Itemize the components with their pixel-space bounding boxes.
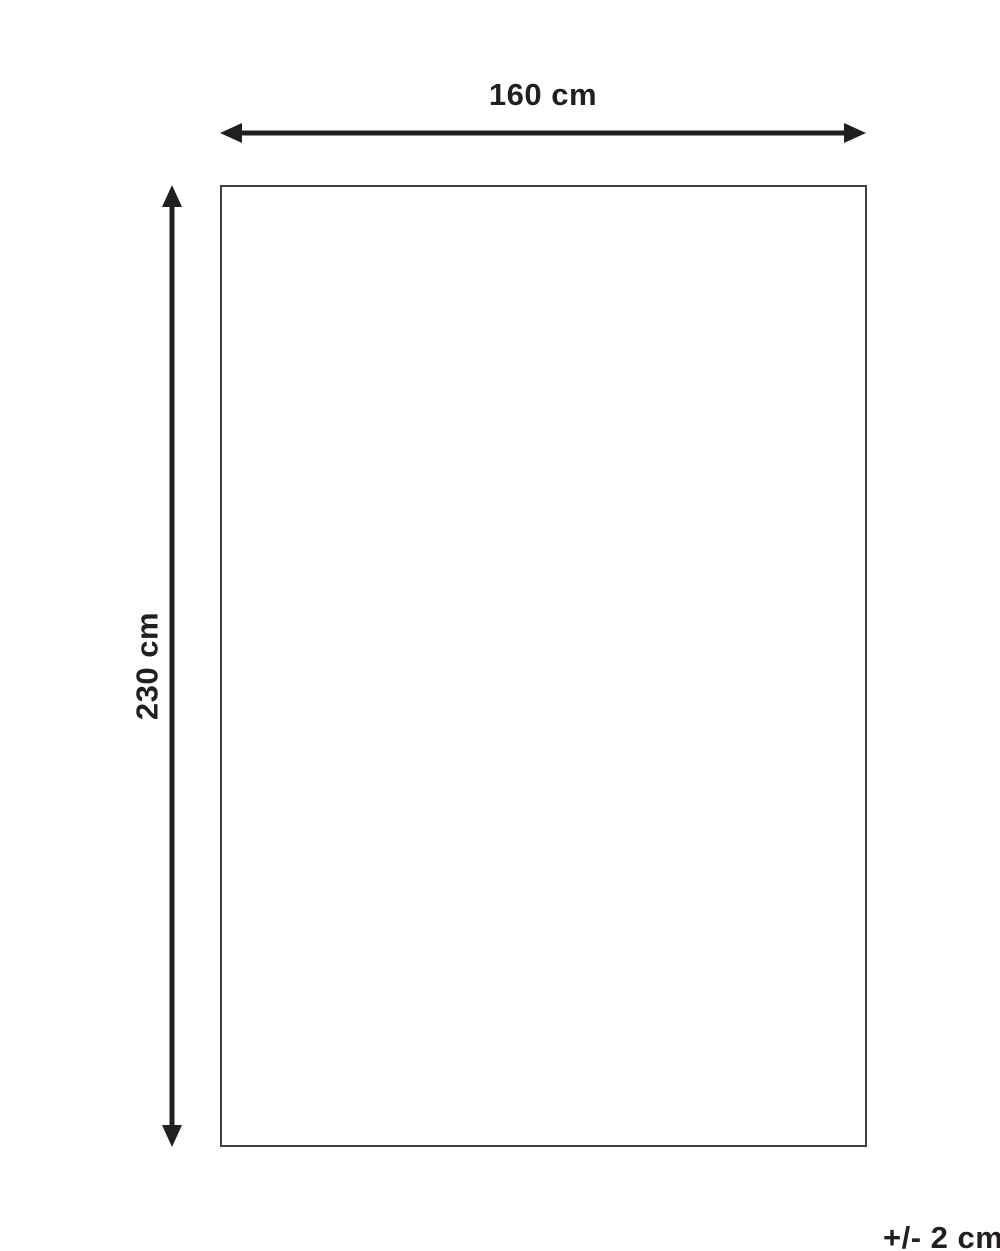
height-arrowhead-top bbox=[162, 185, 182, 207]
tolerance-label: +/- 2 cm bbox=[883, 1222, 1000, 1251]
height-double-arrow-icon bbox=[159, 185, 185, 1147]
width-double-arrow-icon bbox=[220, 120, 866, 146]
product-outline-rectangle bbox=[220, 185, 867, 1147]
height-dimension-label: 230 cm bbox=[132, 612, 163, 720]
width-arrowhead-right bbox=[844, 123, 866, 143]
height-arrowhead-bottom bbox=[162, 1125, 182, 1147]
width-arrowhead-left bbox=[220, 123, 242, 143]
width-dimension-label: 160 cm bbox=[220, 79, 866, 110]
dimension-diagram: 160 cm 230 cm +/- 2 cm bbox=[0, 0, 1000, 1251]
